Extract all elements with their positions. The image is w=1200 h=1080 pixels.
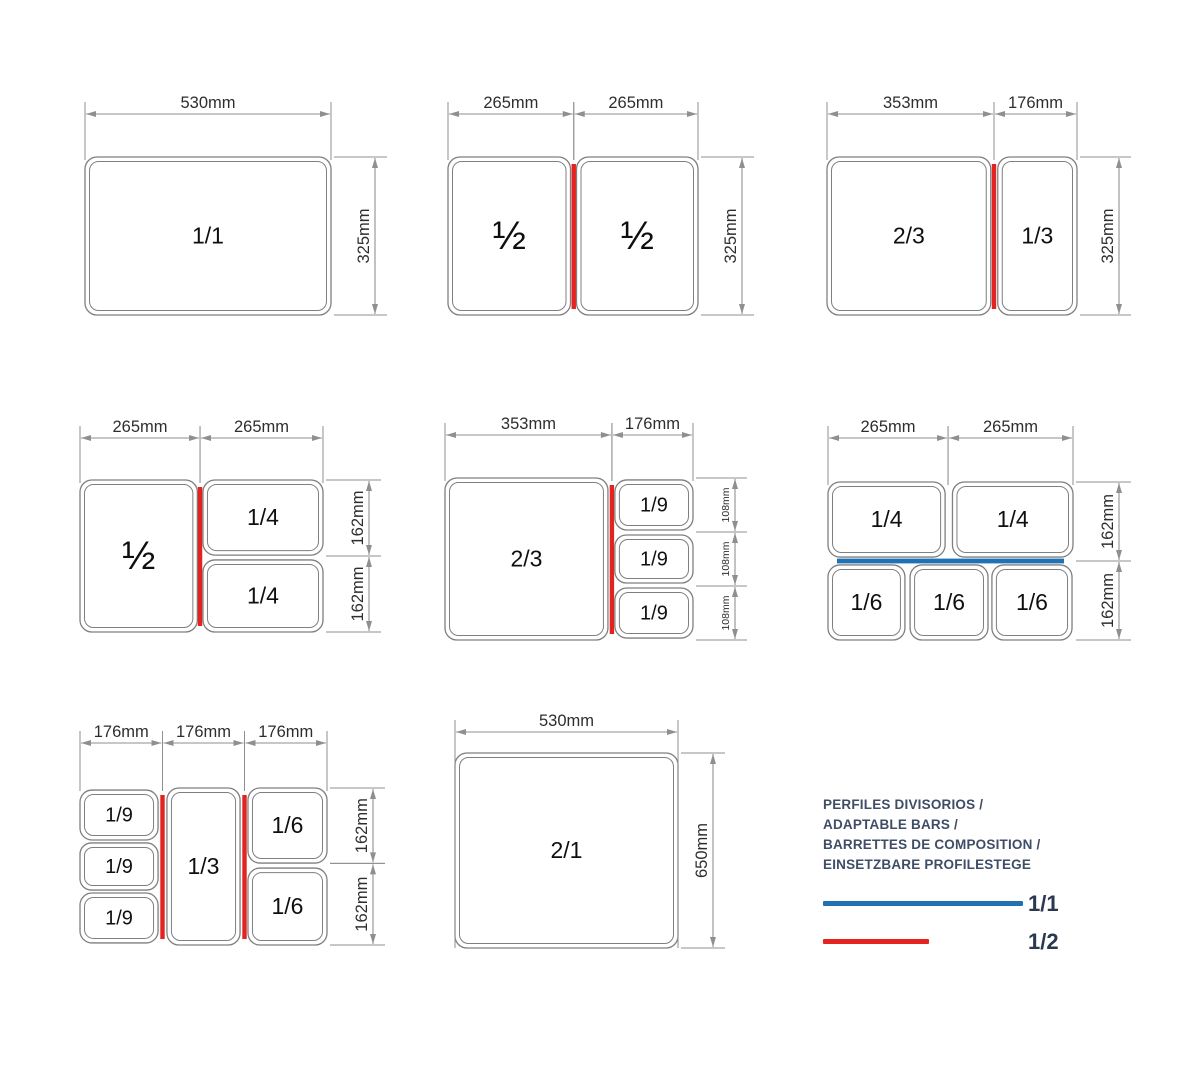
dim-arrowhead [995, 111, 1005, 117]
pan-fraction-label: 1/4 [247, 583, 279, 609]
dim-arrowhead [575, 111, 585, 117]
dim-arrowhead [937, 435, 947, 441]
dim-arrowhead [828, 111, 838, 117]
dim-arrowhead [732, 629, 738, 639]
legend: PERFILES DIVISORIOS / ADAPTABLE BARS / B… [823, 795, 1183, 975]
pan-fraction-label: 1/1 [192, 223, 224, 249]
legend-title-es: PERFILES DIVISORIOS / [823, 795, 1183, 815]
legend-title-de: EINSETZBARE PROFILESTEGE [823, 855, 1183, 875]
pan-fraction-label: 1/6 [933, 589, 965, 615]
dim-arrowhead [710, 754, 716, 764]
dim-arrowhead [1116, 158, 1122, 168]
dim-arrowhead [234, 740, 244, 746]
pan-fraction-label: 1/9 [640, 549, 668, 571]
dim-width-label: 265mm [234, 418, 289, 436]
dim-height-label: 162mm [353, 877, 371, 932]
dim-arrowhead [189, 435, 199, 441]
dim-arrowhead [372, 304, 378, 314]
pan-fraction-label: 1/4 [997, 506, 1029, 532]
dim-arrowhead [372, 158, 378, 168]
dim-arrowhead [1062, 435, 1072, 441]
divider-bar-red [160, 795, 164, 939]
dim-height-label: 108mm [720, 487, 732, 522]
dim-arrowhead [1116, 483, 1122, 493]
dim-height-label: 325mm [1099, 208, 1117, 263]
dim-width-label: 353mm [501, 415, 556, 433]
pan-fraction-label: 1/3 [1021, 223, 1053, 249]
dim-width-label: 176mm [258, 723, 313, 741]
dim-arrowhead [667, 729, 677, 735]
pan-fraction-label: 2/3 [510, 546, 542, 572]
dim-arrowhead [1116, 550, 1122, 560]
divider-bar-red [198, 487, 202, 626]
dim-arrowhead [151, 740, 161, 746]
dim-arrowhead [732, 587, 738, 597]
dim-width-label: 265mm [113, 418, 168, 436]
legend-entry-full-length-bar: 1/1 [823, 891, 1183, 915]
dim-height-label: 162mm [1099, 494, 1117, 549]
dim-arrowhead [370, 789, 376, 799]
dim-arrowhead [316, 740, 326, 746]
pan-fraction-label: 1/6 [271, 893, 303, 919]
dim-arrowhead [370, 864, 376, 874]
pan-fraction-label: 1/6 [271, 812, 303, 838]
dim-width-label: 265mm [861, 418, 916, 436]
pan-fraction-label: 1/9 [105, 856, 133, 878]
dim-arrowhead [1116, 304, 1122, 314]
dim-arrowhead [312, 435, 322, 441]
legend-bar-blue-label: 1/1 [1028, 891, 1059, 917]
legend-title-fr: BARRETTES DE COMPOSITION / [823, 835, 1183, 855]
dim-arrowhead [983, 111, 993, 117]
dim-height-label: 162mm [349, 566, 367, 621]
pan-fraction-label: ½ [122, 534, 155, 578]
dim-height-label: 162mm [349, 490, 367, 545]
pan-fraction-label: 1/9 [640, 495, 668, 517]
legend-bar-blue [823, 901, 1023, 906]
divider-bar-red [610, 485, 614, 634]
dim-height-label: 650mm [693, 823, 711, 878]
divider-bar-red [992, 164, 996, 309]
dim-arrowhead [1116, 562, 1122, 572]
dim-width-label: 265mm [983, 418, 1038, 436]
legend-bar-red-label: 1/2 [1028, 929, 1059, 955]
dim-width-label: 265mm [608, 94, 663, 112]
pan-fraction-label: 1/9 [640, 603, 668, 625]
dim-arrowhead [446, 432, 456, 438]
pan-fraction-label: 1/6 [850, 589, 882, 615]
pan-fraction-label: 2/3 [893, 223, 925, 249]
dim-arrowhead [163, 740, 173, 746]
dim-width-label: 353mm [883, 94, 938, 112]
pan-fraction-label: 1/4 [871, 506, 903, 532]
dim-width-label: 265mm [483, 94, 538, 112]
dim-arrowhead [366, 481, 372, 491]
dim-arrowhead [201, 435, 211, 441]
pan-fraction-label: 1/3 [188, 853, 220, 879]
dim-arrowhead [1066, 111, 1076, 117]
dim-height-label: 325mm [722, 208, 740, 263]
divider-bar-blue [837, 559, 1064, 564]
dim-arrowhead [739, 158, 745, 168]
dim-arrowhead [732, 479, 738, 489]
dim-width-label: 530mm [180, 94, 235, 112]
dim-arrowhead [81, 435, 91, 441]
legend-bar-red [823, 939, 929, 944]
dim-height-label: 162mm [1099, 573, 1117, 628]
dim-arrowhead [949, 435, 959, 441]
dim-arrowhead [732, 521, 738, 531]
dim-arrowhead [613, 432, 623, 438]
divider-bar-red [242, 795, 246, 939]
dim-arrowhead [710, 937, 716, 947]
dim-arrowhead [732, 575, 738, 585]
pan-fraction-label: 2/1 [551, 837, 583, 863]
dim-arrowhead [366, 557, 372, 567]
dim-arrowhead [449, 111, 459, 117]
dim-width-label: 176mm [176, 723, 231, 741]
dim-arrowhead [81, 740, 91, 746]
dim-width-label: 176mm [625, 415, 680, 433]
dim-arrowhead [320, 111, 330, 117]
divider-bar-red [572, 164, 576, 309]
pan-fraction-label: 1/9 [105, 805, 133, 827]
dim-arrowhead [1116, 629, 1122, 639]
pan-fraction-label: ½ [493, 214, 526, 258]
pan-fraction-label: 1/4 [247, 504, 279, 530]
dim-arrowhead [563, 111, 573, 117]
dim-arrowhead [687, 111, 697, 117]
dim-arrowhead [246, 740, 256, 746]
dim-height-label: 325mm [355, 208, 373, 263]
pan-fraction-label: ½ [621, 214, 654, 258]
pan-fraction-label: 1/9 [105, 908, 133, 930]
dim-arrowhead [86, 111, 96, 117]
dim-width-label: 176mm [1008, 94, 1063, 112]
gn-pan-size-diagram-sheet: 1/1530mm325mm½½265mm265mm325mm2/31/3353m… [0, 0, 1200, 1080]
legend-entry-half-length-bar: 1/2 [823, 929, 1183, 953]
dim-arrowhead [370, 934, 376, 944]
dim-width-label: 176mm [94, 723, 149, 741]
dim-height-label: 162mm [353, 798, 371, 853]
dim-arrowhead [456, 729, 466, 735]
dim-width-label: 530mm [539, 712, 594, 730]
legend-title: PERFILES DIVISORIOS / ADAPTABLE BARS / B… [823, 795, 1183, 875]
dim-arrowhead [601, 432, 611, 438]
pan-fraction-label: 1/6 [1016, 589, 1048, 615]
dim-height-label: 108mm [720, 595, 732, 630]
dim-arrowhead [732, 533, 738, 543]
dim-arrowhead [739, 304, 745, 314]
dim-arrowhead [682, 432, 692, 438]
legend-title-en: ADAPTABLE BARS / [823, 815, 1183, 835]
dim-height-label: 108mm [720, 541, 732, 576]
dim-arrowhead [829, 435, 839, 441]
